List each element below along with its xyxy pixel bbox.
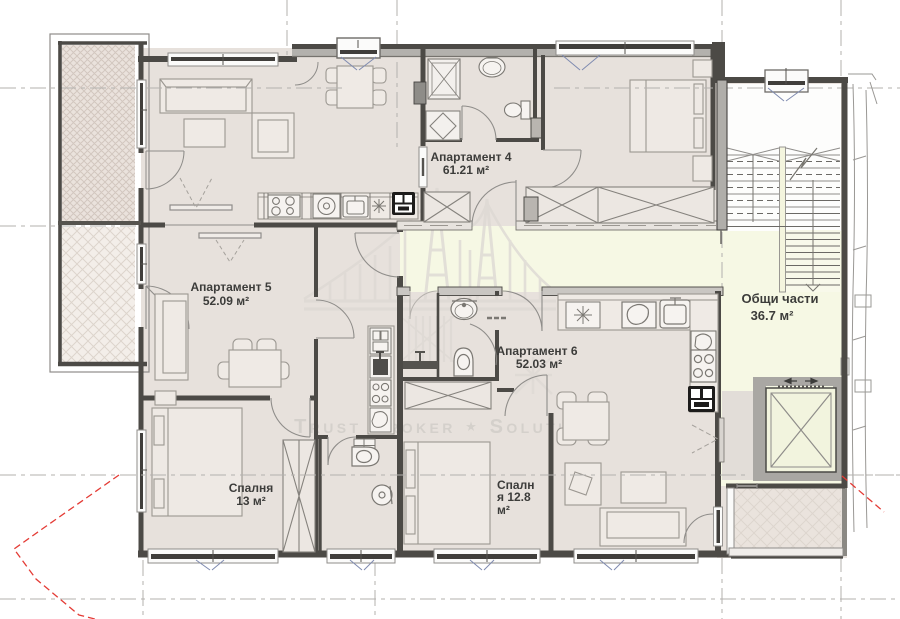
svg-text:Апартамент 6: Апартамент 6: [497, 344, 578, 358]
svg-text:13 м²: 13 м²: [236, 494, 266, 508]
svg-text:52.03 м²: 52.03 м²: [516, 357, 562, 371]
svg-text:36.7 м²: 36.7 м²: [751, 308, 795, 323]
svg-text:м²: м²: [497, 503, 510, 517]
svg-text:52.09 м²: 52.09 м²: [203, 294, 249, 308]
svg-text:Апартамент 4: Апартамент 4: [431, 150, 512, 164]
svg-text:61.21 м²: 61.21 м²: [443, 163, 489, 177]
svg-text:Спалня: Спалня: [229, 481, 273, 495]
svg-text:Общи части: Общи части: [741, 291, 818, 306]
svg-text:Апартамент 5: Апартамент 5: [191, 280, 272, 294]
svg-text:я 12.8: я 12.8: [497, 490, 531, 504]
